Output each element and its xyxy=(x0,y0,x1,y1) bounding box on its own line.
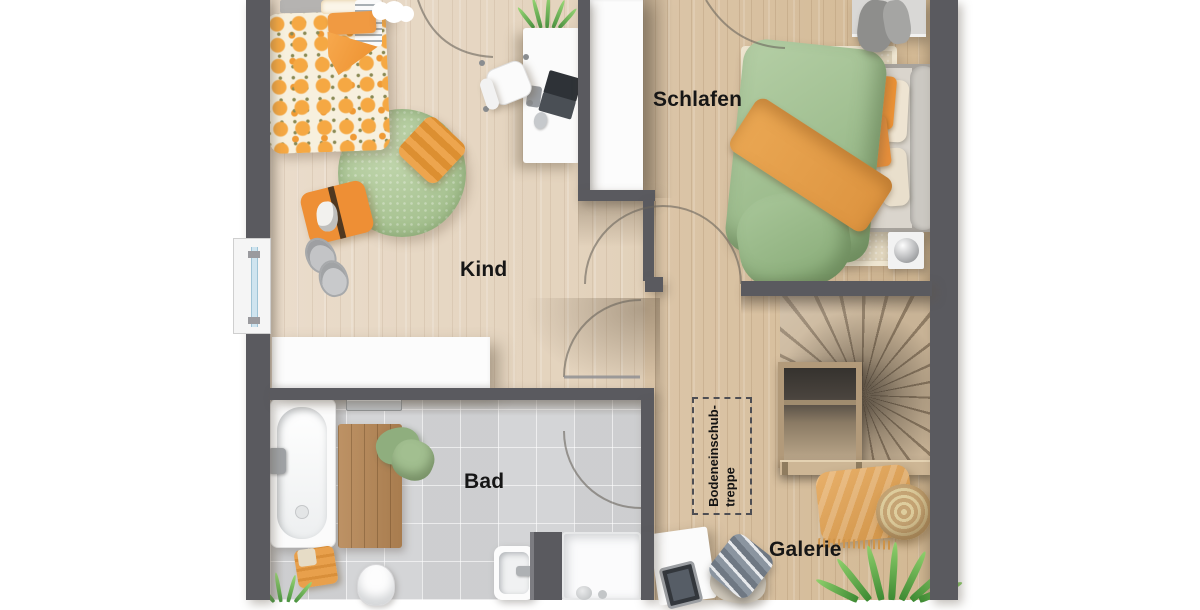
window-glass xyxy=(251,247,258,327)
window-handle xyxy=(248,317,260,324)
wall-door-jamb xyxy=(645,277,663,292)
window-handle xyxy=(248,251,260,258)
room-label-bad: Bad xyxy=(464,470,504,494)
leaf xyxy=(274,572,283,602)
wardrobe xyxy=(590,0,643,191)
fern-plant xyxy=(846,546,934,600)
tub-faucet xyxy=(268,448,286,474)
desk-chair xyxy=(477,52,535,118)
sideboard xyxy=(272,337,490,388)
wall-bad-top xyxy=(270,388,654,400)
attic-hatch-label: Bodeneinschub- treppe xyxy=(706,405,739,507)
potted-plant xyxy=(524,0,570,28)
exterior-wall-right xyxy=(930,0,958,600)
tub-drain xyxy=(295,505,309,519)
shower-tray xyxy=(562,532,641,600)
leaf xyxy=(888,542,899,600)
wall-kind-schlafen xyxy=(578,0,590,192)
floor-plan: Bodeneinschub- treppe xyxy=(0,0,1200,600)
washcloth xyxy=(297,548,317,567)
double-bed xyxy=(750,64,936,232)
sink xyxy=(494,546,534,600)
wall-shower-stub xyxy=(530,532,562,600)
shower-knob xyxy=(598,590,607,599)
shower-drain xyxy=(576,586,592,600)
attic-hatch-label-line1: Bodeneinschub- xyxy=(706,405,722,507)
nightstand xyxy=(888,232,924,269)
wall-bad-right xyxy=(641,400,654,532)
attic-hatch-outline: Bodeneinschub- treppe xyxy=(692,397,752,515)
kind-bed xyxy=(266,0,390,154)
window xyxy=(233,238,271,334)
caster xyxy=(479,60,485,66)
wicker-pouf xyxy=(876,484,932,540)
caster xyxy=(523,54,529,60)
wall-schlafen-bottom xyxy=(741,281,932,296)
railing-post xyxy=(782,462,788,475)
sphere-lamp xyxy=(894,238,919,263)
leaf xyxy=(545,0,551,28)
attic-hatch-label-line2: treppe xyxy=(722,405,738,507)
caster xyxy=(527,100,533,106)
wall-shower-right xyxy=(641,532,654,600)
room-label-galerie: Galerie xyxy=(769,538,842,562)
room-label-kind: Kind xyxy=(460,258,507,282)
cloud-decor xyxy=(372,2,390,20)
wall-hall-schlafen xyxy=(643,200,654,281)
tablet-screen xyxy=(667,569,695,601)
orange-pillow xyxy=(327,11,376,35)
room-label-schlafen: Schlafen xyxy=(653,88,742,112)
bed-frame xyxy=(280,0,326,13)
stairwell-opening xyxy=(778,362,862,468)
stair-landing-edge xyxy=(784,400,856,405)
